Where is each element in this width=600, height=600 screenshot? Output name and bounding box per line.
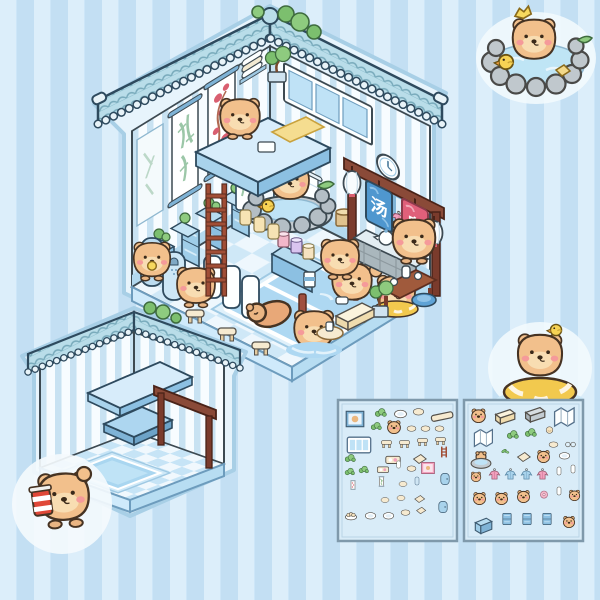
sticker-item-panel	[571, 465, 575, 473]
sticker-item-pframe	[422, 462, 435, 473]
sticker-item-capy	[538, 451, 550, 463]
sticker-item-oval	[397, 496, 405, 501]
sticker-item-capy	[518, 491, 530, 503]
product-image: 汤 泉	[0, 0, 600, 600]
sticker-item-capy	[471, 472, 481, 482]
sticker-item-panel	[557, 467, 561, 475]
sticker-item-oval	[413, 409, 423, 416]
sticker-item-oval	[421, 426, 430, 432]
sticker-item-capy	[569, 490, 579, 500]
sticker-item-panel	[397, 461, 401, 468]
sticker-item-capy	[496, 493, 508, 505]
loft-tray	[258, 142, 275, 152]
sticker-item-locker	[543, 513, 551, 524]
sticker-hot-spring-capybara	[476, 6, 596, 104]
sticker-drink-capybara	[12, 454, 112, 554]
sticker-item-plate	[365, 513, 375, 520]
sticker-item-window	[347, 437, 370, 453]
sticker-item-capy	[474, 493, 486, 505]
sticker-item-capy	[388, 421, 401, 434]
sticker-item-locker	[523, 513, 531, 524]
sticker-item-bpanel	[415, 477, 419, 485]
sticker-item-plate	[395, 410, 407, 418]
sticker-item-oval	[435, 426, 444, 432]
sticker-item-locker	[503, 513, 511, 524]
sticker-item-oval	[399, 482, 407, 487]
scene: 汤 泉	[0, 0, 600, 600]
sticker-item-oval	[401, 510, 410, 515]
sticker-item-bun	[546, 427, 553, 434]
sticker-item-plate	[559, 453, 569, 460]
sticker-item-fold	[474, 430, 492, 447]
sticker-item-panel	[557, 487, 561, 495]
sticker-item-fold	[555, 408, 575, 426]
sticker-item-oval	[407, 426, 416, 432]
sticker-item-oval	[549, 442, 558, 448]
cushion	[412, 294, 436, 307]
sticker-item-dump	[345, 513, 356, 520]
sticker-sheet-2	[464, 400, 583, 541]
pale-banner	[137, 124, 163, 226]
sticker-item-donut	[540, 491, 547, 498]
sticker-item-scroll	[350, 480, 356, 490]
sticker-item-plate	[383, 513, 393, 520]
sticker-sheet-1	[338, 400, 457, 541]
sticker-item-tray	[377, 467, 388, 473]
sticker-item-oval	[407, 466, 416, 472]
sticker-item-oval	[381, 498, 389, 503]
sticker-item-gscroll	[378, 476, 384, 486]
sticker-item-capy	[472, 409, 486, 423]
sticker-item-door	[439, 501, 447, 512]
sticker-item-door	[441, 473, 449, 484]
sticker-item-capy	[563, 516, 574, 527]
milk-carton	[304, 272, 315, 287]
sticker-item-frame	[346, 411, 364, 426]
soap	[336, 297, 348, 304]
